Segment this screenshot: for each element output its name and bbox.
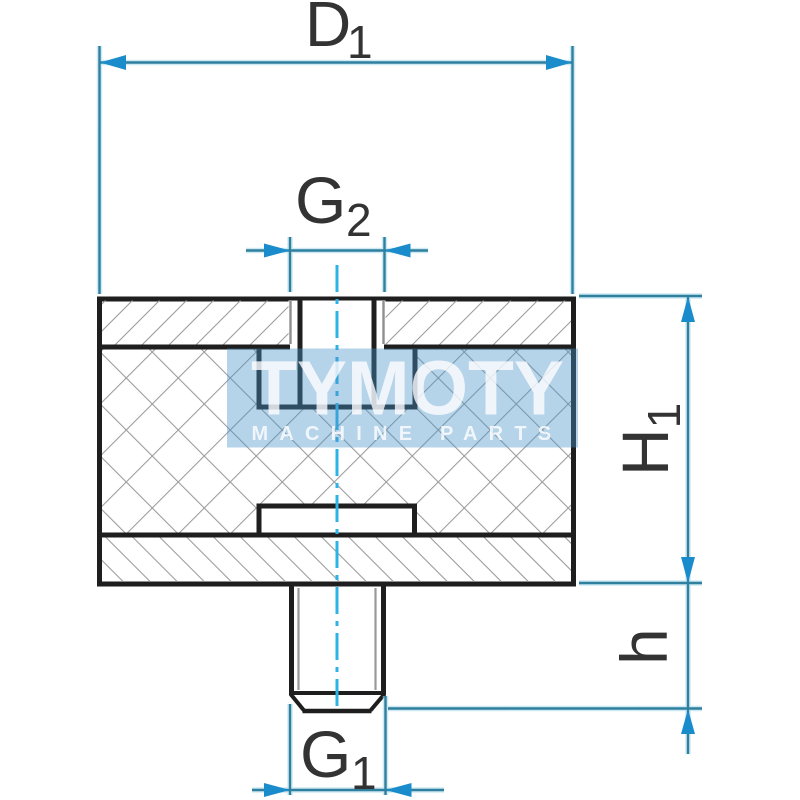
svg-text:2: 2 [346,194,372,246]
svg-text:G: G [295,163,346,237]
svg-text:1: 1 [347,16,373,68]
svg-text:1: 1 [351,747,377,799]
svg-text:h: h [607,628,681,665]
svg-text:MACHINE PARTS: MACHINE PARTS [252,423,563,445]
svg-text:G: G [300,717,351,791]
svg-text:TYMOTY: TYMOTY [251,346,564,432]
svg-text:D: D [305,0,351,60]
